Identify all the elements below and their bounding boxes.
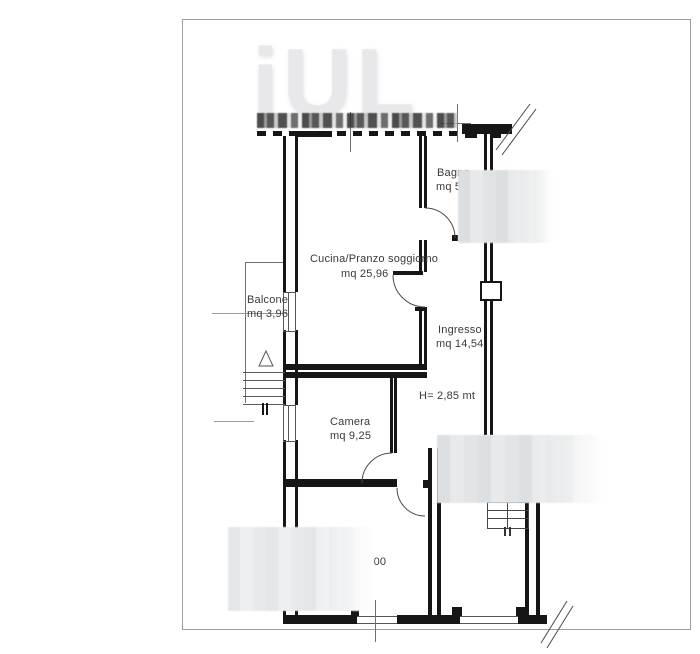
door-jamb bbox=[415, 307, 427, 311]
room-area-balcone: mq 3,96 bbox=[247, 308, 288, 321]
wall-segment bbox=[428, 448, 432, 622]
room-area-ingresso: mq 14,54 bbox=[436, 338, 483, 351]
wall-segment bbox=[419, 307, 422, 364]
balcony-outline bbox=[245, 262, 283, 263]
wall-segment bbox=[394, 378, 397, 453]
redacted-watermark-band bbox=[257, 113, 457, 128]
radiator-symbol bbox=[487, 502, 529, 529]
wall-segment bbox=[518, 615, 547, 624]
door-leaf bbox=[393, 271, 423, 275]
redacted-block-bagno bbox=[458, 170, 554, 243]
room-label-cucina: Cucina/Pranzo soggiorno bbox=[310, 253, 438, 266]
redacted-block-lower-left bbox=[228, 527, 374, 611]
ceiling-height-note: H= 2,85 mt bbox=[419, 390, 475, 403]
dimension-line bbox=[214, 421, 254, 422]
wall-segment bbox=[283, 136, 286, 292]
wall-segment bbox=[397, 615, 460, 624]
wall-box-symbol bbox=[480, 281, 502, 301]
redacted-block-lower-right bbox=[437, 435, 603, 503]
wall-segment bbox=[295, 136, 298, 292]
wall-jamb bbox=[516, 607, 525, 616]
wall-segment bbox=[283, 372, 427, 378]
wall-segment bbox=[295, 131, 332, 137]
bottom-window-right bbox=[460, 616, 518, 624]
wall-segment bbox=[283, 479, 397, 487]
stairs-tick bbox=[262, 403, 264, 415]
room-label-ingresso: Ingresso bbox=[438, 324, 482, 337]
wall-segment bbox=[283, 615, 357, 624]
stairs-tick bbox=[266, 403, 268, 415]
room-label-camera: Camera bbox=[330, 416, 370, 429]
wall-segment bbox=[424, 136, 427, 208]
room-label-balcone: Balcone bbox=[247, 294, 288, 307]
wall-segment bbox=[465, 134, 477, 138]
wall-segment bbox=[424, 307, 427, 364]
dashed-wall-line bbox=[257, 131, 462, 136]
radiator-pipes bbox=[504, 527, 511, 536]
dimension-line bbox=[375, 600, 376, 642]
stairs bbox=[243, 372, 285, 405]
wall-segment bbox=[390, 378, 393, 453]
room-area-camera: mq 9,25 bbox=[330, 430, 371, 443]
wall-segment bbox=[283, 364, 427, 370]
bottom-window-left bbox=[357, 616, 397, 624]
wall-segment bbox=[490, 299, 493, 435]
room-area-cucina: mq 25,96 bbox=[341, 268, 388, 281]
wall-segment bbox=[484, 299, 487, 435]
camera-window bbox=[283, 405, 296, 442]
wall-jamb bbox=[452, 607, 462, 616]
wall-segment bbox=[419, 136, 422, 208]
floor-plan-page: iUL bbox=[0, 0, 700, 654]
wall-segment bbox=[462, 124, 512, 134]
